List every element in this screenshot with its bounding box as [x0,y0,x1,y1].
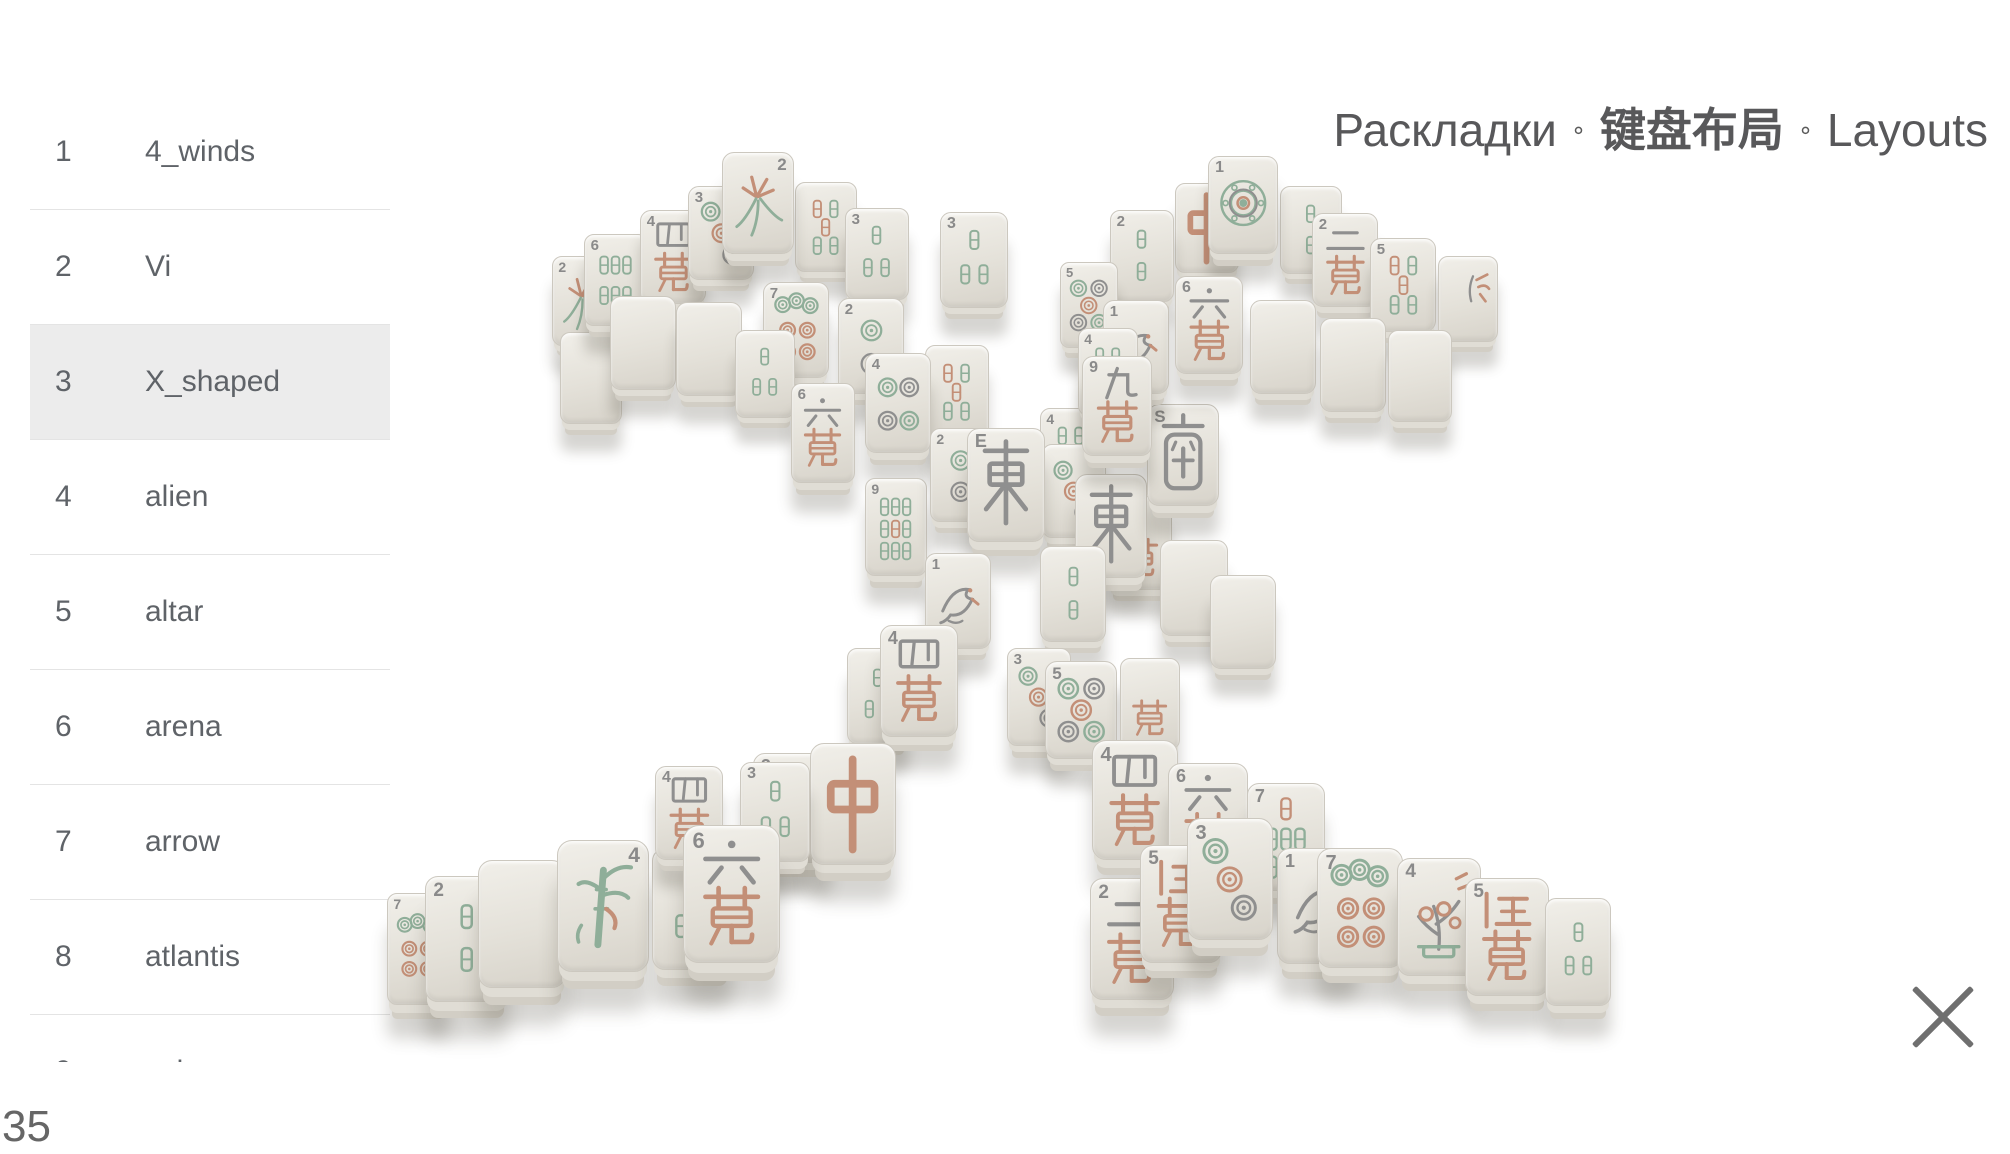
tile-corner-number: 3 [747,766,756,782]
layout-list-item[interactable]: 4 alien [30,440,390,555]
mahjong-tile: 4 [1092,740,1178,860]
mahjong-tile: E [967,428,1045,542]
layout-number: 9 [55,1055,145,1062]
tile-corner-number: 2 [936,432,944,446]
layout-name: 4_winds [145,135,390,169]
mahjong-tile [925,345,989,439]
tile-corner-number: 2 [1319,217,1327,232]
layout-list-item[interactable]: 7 arrow [30,785,390,900]
mahjong-tile: 2 [1312,213,1378,307]
mahjong-tile: 7 [1317,848,1403,968]
mahjong-tile [1210,575,1276,669]
tile-corner-number: 1 [932,557,940,572]
layout-name: X_shaped [145,365,390,399]
page-title-english: Layouts [1827,104,1988,156]
tile-corner-number: 5 [1066,266,1073,279]
mahjong-tile: 5 [1370,238,1436,332]
tile-corner-number: 2 [1098,883,1109,902]
tile-corner-number: 5 [1148,849,1159,868]
mahjong-tile [1545,898,1611,1006]
tile-corner-number: 7 [1255,787,1265,805]
tile-corner-number: 3 [947,216,956,232]
tile-corner-number: E [975,432,987,450]
layout-number: 1 [55,135,145,169]
tile-corner-number: 2 [433,881,444,900]
layout-number: 4 [55,480,145,514]
layout-list-item[interactable]: 8 atlantis [30,900,390,1015]
mahjong-tile [478,860,566,988]
mahjong-tile [1388,330,1452,422]
layout-name: Vi [145,250,390,284]
layout-name: alien [145,480,390,514]
close-icon[interactable] [1906,980,1980,1054]
mahjong-tile: 4 [557,840,649,972]
tile-corner-number: 3 [1014,652,1022,667]
mahjong-tile [1320,318,1386,412]
mahjong-tile: 5 [1465,878,1549,996]
layout-list-item[interactable]: 5 altar [30,555,390,670]
mahjong-tile [810,743,896,865]
layout-number: 6 [55,710,145,744]
tile-corner-number: 4 [888,629,898,647]
tile-corner-number: 2 [777,156,786,173]
mahjong-tile: 1 [1208,156,1278,254]
layout-count: 35 [2,1102,51,1152]
mahjong-tile: S [1147,404,1219,506]
mahjong-tile [610,296,676,390]
tile-corner-number: 6 [798,387,806,402]
mahjong-tile: 6 [683,825,780,963]
layout-name: arrow [145,825,390,859]
tile-corner-number: 6 [591,238,599,253]
mahjong-tile [1250,300,1316,394]
tile-corner-number: 9 [871,482,879,496]
layout-list-item[interactable]: 1 4_winds [30,95,390,210]
page-title: Раскладки∘键盘布局∘Layouts [1333,94,1988,160]
layout-number: 3 [55,365,145,399]
page-title-chinese: 键盘布局 [1600,104,1784,156]
tile-corner-number: 6 [693,830,705,852]
layout-name: atlantis [145,940,390,974]
tile-corner-number: 7 [393,897,401,911]
tile-corner-number: 4 [1046,412,1054,426]
tile-corner-number: 4 [1101,745,1112,765]
tile-corner-number: 6 [1176,767,1186,785]
tile-corner-number: 3 [1196,823,1207,843]
title-separator: ∘ [1571,117,1586,144]
mahjong-tile: 3 [1187,818,1273,940]
tile-corner-number: 2 [558,260,566,274]
mahjong-tile: 6 [1175,276,1243,374]
layout-number: 8 [55,940,145,974]
tile-corner-number: 4 [647,214,655,229]
mahjong-tile: 9 [865,478,927,576]
mahjong-tile [676,302,742,396]
tile-corner-number: 5 [1377,242,1385,257]
layout-name: arena [145,710,390,744]
layout-number: 2 [55,250,145,284]
mahjong-tile [1120,658,1180,750]
layout-list-item[interactable]: 3 X_shaped [30,325,390,440]
mahjong-tile: 6 [791,383,855,483]
layout-name: altar [145,595,390,629]
tile-corner-number: 6 [1182,280,1191,296]
tile-corner-number: 5 [1052,665,1061,682]
layout-number: 5 [55,595,145,629]
tile-corner-number: 1 [1215,160,1224,176]
mahjong-tile: 4 [880,625,958,737]
layout-list-item[interactable]: 9 axis [30,1015,390,1062]
tile-corner-number: 2 [845,302,853,317]
mahjong-tile: 3 [845,208,909,300]
tile-corner-number: 4 [662,770,671,786]
tile-corner-number: 7 [770,286,778,301]
layout-list-item[interactable]: 6 arena [30,670,390,785]
tile-corner-number: 7 [1326,853,1337,873]
tile-corner-number: 3 [852,212,860,227]
tile-corner-number: 4 [1405,862,1416,881]
tile-corner-number: 4 [628,845,640,866]
tile-corner-number: 4 [872,357,880,372]
layout-list-item[interactable]: 2 Vi [30,210,390,325]
mahjong-tile: 3 [940,212,1008,308]
tile-corner-number: 4 [1084,332,1092,346]
tile-corner-number: 9 [1089,360,1098,376]
tile-corner-number: S [1154,408,1165,425]
tile-corner-number: 5 [1473,882,1484,901]
tile-corner-number: 1 [1110,304,1118,319]
mahjong-tile [735,330,795,418]
page-title-russian: Раскладки [1333,104,1556,156]
mahjong-tile: 4 [865,353,931,453]
mahjong-tile [1438,256,1498,342]
mahjong-tile [1040,546,1106,642]
mahjong-tile: 2 [722,152,794,254]
tile-corner-number: 3 [695,190,703,205]
mahjong-tile: 2 [1110,210,1174,302]
layout-name: axis [145,1055,390,1062]
title-separator: ∘ [1798,117,1813,144]
layout-list: 1 4_winds 2 Vi 3 X_shaped 4 alien 5 alta… [30,95,390,1062]
layout-number: 7 [55,825,145,859]
mahjong-tile: 9 [1082,356,1152,456]
tile-corner-number: 1 [1285,852,1295,870]
tile-corner-number: 2 [1117,214,1125,229]
